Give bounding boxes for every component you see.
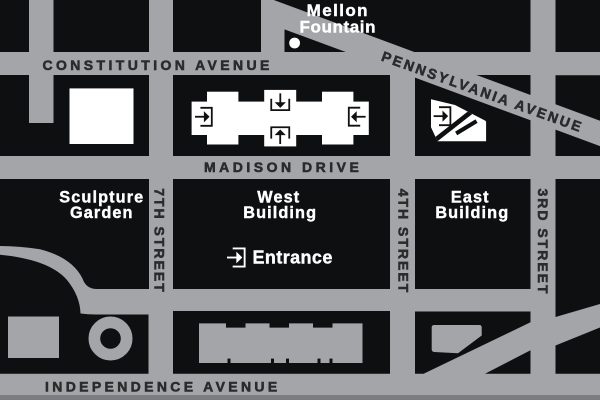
svg-text:Fountain: Fountain — [300, 18, 377, 37]
svg-text:CONSTITUTION AVENUE: CONSTITUTION AVENUE — [43, 57, 273, 73]
svg-text:Building: Building — [435, 204, 509, 222]
svg-text:MADISON DRIVE: MADISON DRIVE — [204, 159, 362, 175]
svg-text:4TH STREET: 4TH STREET — [395, 189, 411, 295]
svg-text:Entrance: Entrance — [253, 248, 333, 268]
svg-text:Garden: Garden — [70, 204, 134, 222]
svg-text:Building: Building — [243, 204, 317, 222]
svg-text:INDEPENDENCE AVENUE: INDEPENDENCE AVENUE — [45, 378, 281, 394]
svg-text:7TH STREET: 7TH STREET — [152, 188, 168, 294]
svg-text:3RD STREET: 3RD STREET — [535, 188, 551, 295]
